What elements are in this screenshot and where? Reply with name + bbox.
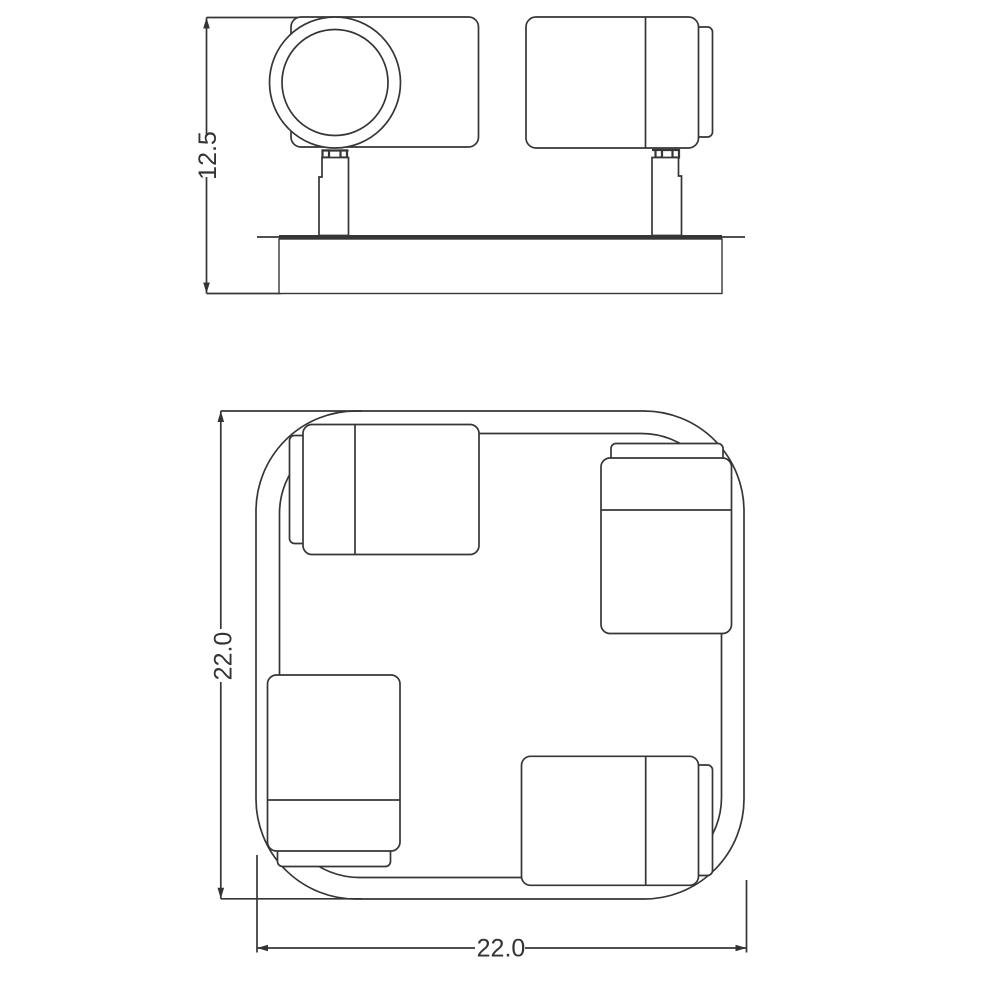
svg-text:12.5: 12.5	[194, 131, 222, 180]
svg-text:22.0: 22.0	[210, 632, 238, 681]
svg-text:22.0: 22.0	[477, 935, 526, 963]
